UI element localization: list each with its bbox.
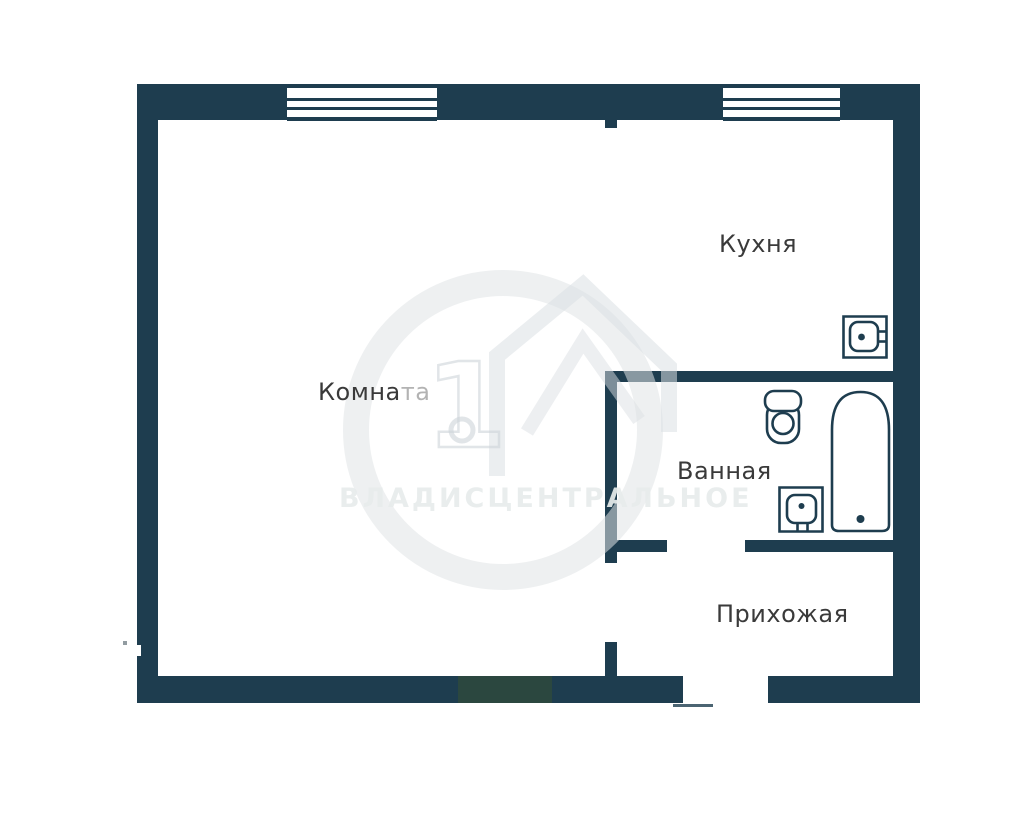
bathtub-icon bbox=[830, 390, 891, 535]
wall-right bbox=[893, 84, 920, 703]
wall-bathroom-bottom-left bbox=[605, 540, 667, 552]
sink-drain bbox=[858, 334, 865, 341]
speck bbox=[123, 641, 127, 645]
window-mullion bbox=[723, 98, 840, 101]
washbasin-drain bbox=[799, 503, 805, 509]
threshold-line bbox=[673, 704, 713, 707]
room-label-kitchen: Кухня bbox=[719, 230, 797, 258]
wall-bottom-livingroom bbox=[137, 676, 683, 703]
wall-notch bbox=[137, 645, 141, 656]
room-label-living-room: Комната bbox=[318, 378, 430, 406]
bathtub-drain bbox=[857, 515, 865, 523]
toilet-icon bbox=[763, 389, 803, 446]
watermark-brand-text: ВЛАДИСЦЕНТРАЛЬНОЕ bbox=[339, 483, 753, 514]
wall-bathroom-top bbox=[605, 371, 893, 382]
watermark-logo-digit: 1 bbox=[425, 337, 507, 475]
window-livingroom bbox=[287, 84, 437, 121]
window-mullion bbox=[287, 98, 437, 101]
wall-left bbox=[137, 84, 158, 703]
room-label-living-room-faded: та bbox=[401, 378, 431, 406]
watermark-logo-loop bbox=[451, 419, 473, 441]
room-label-bathroom: Ванная bbox=[677, 457, 772, 485]
wall-divider-lower bbox=[605, 642, 617, 676]
wall-divider-stub bbox=[605, 120, 617, 128]
washbasin-icon bbox=[778, 486, 824, 533]
watermark-house-inner bbox=[527, 341, 639, 432]
window-mullion bbox=[287, 107, 437, 110]
window-kitchen bbox=[723, 84, 840, 121]
room-label-hallway: Прихожая bbox=[716, 600, 849, 628]
wall-bathroom-bottom-right bbox=[745, 540, 893, 552]
wall-bottom-hallway bbox=[768, 676, 920, 703]
wall-green-segment bbox=[458, 676, 552, 703]
kitchen-sink-icon bbox=[842, 315, 888, 359]
floor-plan-canvas: 1 ВЛАДИСЦЕНТРАЛЬНОЕ Комната Кухня Ванная… bbox=[0, 0, 1031, 825]
room-label-living-room-main: Комна bbox=[318, 378, 401, 406]
window-mullion bbox=[723, 107, 840, 110]
wall-divider-main bbox=[605, 371, 617, 563]
